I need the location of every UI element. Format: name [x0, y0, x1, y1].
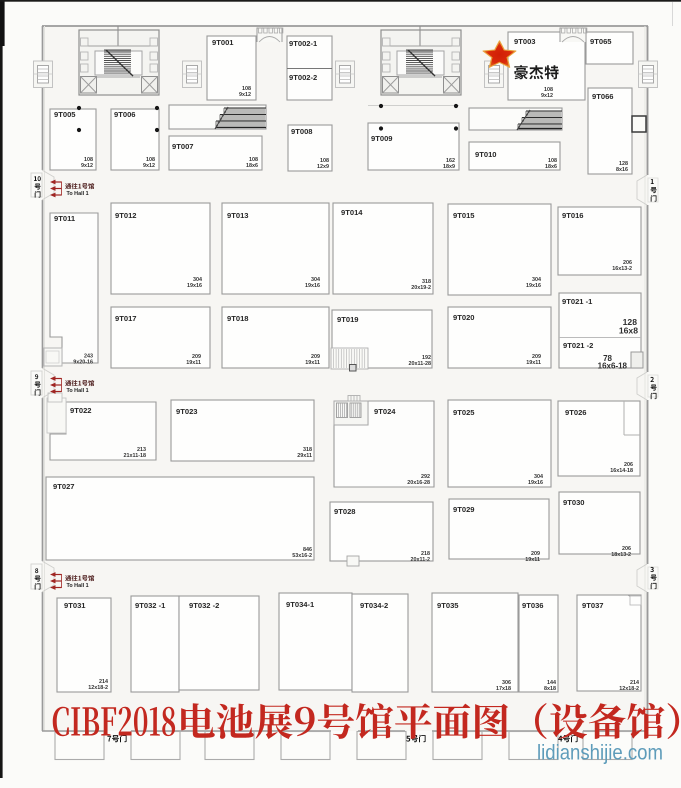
- svg-text:To Hall 1: To Hall 1: [67, 388, 89, 394]
- svg-text:9x12: 9x12: [541, 93, 553, 99]
- svg-text:8x16: 8x16: [616, 167, 628, 173]
- svg-text:9T023: 9T023: [176, 407, 198, 416]
- svg-text:9T020: 9T020: [453, 313, 475, 322]
- svg-text:9T066: 9T066: [592, 92, 614, 101]
- svg-text:9T034-2: 9T034-2: [360, 601, 388, 610]
- svg-text:9T016: 9T016: [562, 211, 584, 220]
- svg-text:12x9: 12x9: [317, 164, 329, 170]
- svg-text:9T011: 9T011: [54, 214, 76, 223]
- svg-text:9T027: 9T027: [53, 482, 75, 491]
- svg-text:20x11-2: 20x11-2: [411, 557, 431, 563]
- svg-text:9T018: 9T018: [227, 314, 249, 323]
- svg-text:20x19-2: 20x19-2: [411, 285, 431, 291]
- svg-text:19x16: 19x16: [305, 283, 320, 289]
- svg-text:9x20-16: 9x20-16: [73, 360, 93, 366]
- svg-text:16x6-18: 16x6-18: [598, 362, 628, 371]
- svg-text:9T065: 9T065: [590, 37, 612, 46]
- svg-text:19x11: 19x11: [186, 360, 201, 366]
- svg-text:18x6: 18x6: [545, 164, 557, 170]
- svg-text:9T006: 9T006: [114, 110, 136, 119]
- svg-text:16x14-18: 16x14-18: [610, 468, 633, 474]
- svg-text:29x11: 29x11: [297, 453, 312, 459]
- svg-text:19x16: 19x16: [187, 283, 202, 289]
- svg-text:9T014: 9T014: [341, 208, 363, 217]
- svg-text:9T003: 9T003: [514, 37, 536, 46]
- svg-text:12x18-2: 12x18-2: [619, 686, 639, 692]
- svg-text:9T028: 9T028: [334, 507, 356, 516]
- svg-text:9T024: 9T024: [374, 407, 396, 416]
- svg-text:17x18: 17x18: [496, 686, 511, 692]
- svg-text:9T010: 9T010: [475, 150, 497, 159]
- svg-text:18x6: 18x6: [246, 163, 258, 169]
- svg-text:9T032 -1: 9T032 -1: [135, 601, 166, 610]
- svg-text:53x16-2: 53x16-2: [292, 553, 312, 559]
- svg-text:9x12: 9x12: [143, 163, 155, 169]
- svg-text:9T015: 9T015: [453, 211, 475, 220]
- svg-text:9T008: 9T008: [291, 127, 313, 136]
- svg-text:9T009: 9T009: [371, 134, 393, 143]
- svg-text:9T031: 9T031: [64, 601, 86, 610]
- svg-text:9T026: 9T026: [565, 408, 587, 417]
- svg-text:9T019: 9T019: [337, 315, 359, 324]
- svg-text:9T002-1: 9T002-1: [289, 39, 318, 48]
- svg-text:18x9: 18x9: [443, 164, 455, 170]
- svg-text:9T012: 9T012: [115, 211, 137, 220]
- svg-text:19x16: 19x16: [528, 480, 543, 486]
- svg-text:9x12: 9x12: [239, 92, 251, 98]
- svg-text:9T037: 9T037: [582, 601, 604, 610]
- svg-text:8x18: 8x18: [544, 686, 556, 692]
- svg-text:9T034-1: 9T034-1: [286, 600, 315, 609]
- svg-text:9T001: 9T001: [212, 38, 234, 47]
- svg-text:9T021 -2: 9T021 -2: [563, 341, 593, 350]
- svg-text:16x13-2: 16x13-2: [612, 266, 632, 272]
- svg-text:9T022: 9T022: [70, 406, 92, 415]
- svg-text:19x11: 19x11: [525, 557, 540, 563]
- svg-text:21x11-18: 21x11-18: [124, 453, 146, 459]
- svg-text:9x12: 9x12: [81, 163, 93, 169]
- svg-text:19x16: 19x16: [526, 283, 541, 289]
- svg-text:9T021 -1: 9T021 -1: [562, 297, 593, 306]
- svg-text:9T032 -2: 9T032 -2: [189, 601, 219, 610]
- svg-text:19x11: 19x11: [305, 360, 320, 366]
- svg-text:9T017: 9T017: [115, 314, 137, 323]
- svg-text:18x13-2: 18x13-2: [611, 552, 631, 558]
- svg-text:To Hall 1: To Hall 1: [67, 191, 89, 197]
- svg-text:9T036: 9T036: [522, 601, 544, 610]
- svg-text:9T002-2: 9T002-2: [289, 73, 317, 82]
- svg-text:9T035: 9T035: [437, 601, 459, 610]
- svg-text:9T007: 9T007: [172, 142, 194, 151]
- svg-text:9T030: 9T030: [563, 498, 585, 507]
- svg-text:lidianshijie.com: lidianshijie.com: [537, 741, 663, 765]
- svg-text:20x16-28: 20x16-28: [407, 480, 430, 486]
- svg-text:19x11: 19x11: [526, 360, 541, 366]
- svg-text:9T013: 9T013: [227, 211, 249, 220]
- svg-text:9T025: 9T025: [453, 408, 475, 417]
- svg-text:9T005: 9T005: [54, 110, 76, 119]
- svg-text:9T029: 9T029: [453, 505, 475, 514]
- svg-text:20x11-28: 20x11-28: [409, 361, 431, 367]
- svg-text:12x18-2: 12x18-2: [88, 685, 108, 691]
- svg-text:To Hall 1: To Hall 1: [67, 583, 89, 589]
- svg-text:16x8: 16x8: [619, 326, 638, 336]
